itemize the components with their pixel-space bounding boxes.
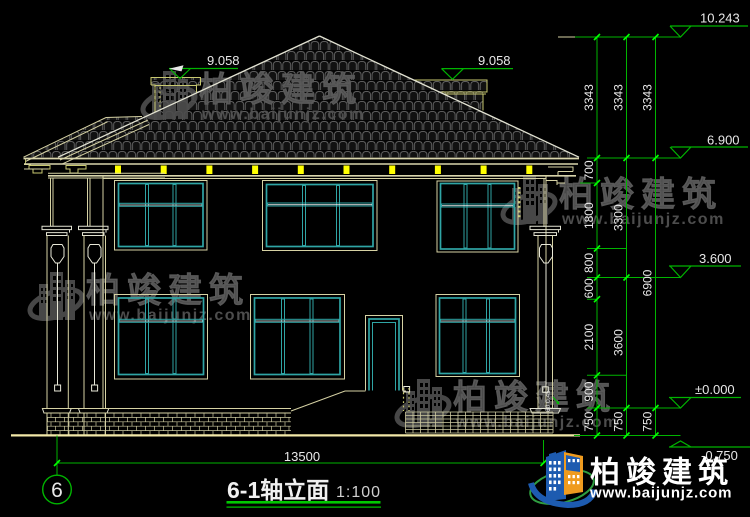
svg-text:750: 750 <box>582 411 596 431</box>
svg-text:3343: 3343 <box>612 84 626 111</box>
svg-text:6900: 6900 <box>641 269 655 296</box>
svg-text:3343: 3343 <box>641 84 655 111</box>
svg-text:3.600: 3.600 <box>699 251 732 266</box>
svg-text:700: 700 <box>582 160 596 180</box>
svg-text:9.058: 9.058 <box>207 53 240 68</box>
svg-text:750: 750 <box>641 411 655 431</box>
svg-text:6-1轴立面: 6-1轴立面 <box>227 477 329 503</box>
svg-text:1800: 1800 <box>582 202 596 229</box>
svg-text:3300: 3300 <box>612 204 626 231</box>
svg-text:±0.000: ±0.000 <box>695 382 735 397</box>
svg-text:10.243: 10.243 <box>700 11 740 26</box>
svg-text:800: 800 <box>582 253 596 273</box>
svg-text:3600: 3600 <box>612 329 626 356</box>
svg-text:1:100: 1:100 <box>336 484 381 501</box>
svg-text:www.baijunjz.com: www.baijunjz.com <box>589 485 732 502</box>
svg-text:60 0.45: 60 0.45 <box>545 390 552 412</box>
svg-text:750: 750 <box>612 411 626 431</box>
svg-text:6: 6 <box>51 479 63 502</box>
svg-text:9.058: 9.058 <box>478 53 511 68</box>
svg-text:3343: 3343 <box>582 84 596 111</box>
svg-text:13500: 13500 <box>284 449 320 464</box>
svg-text:6.900: 6.900 <box>707 133 740 148</box>
svg-text:900: 900 <box>582 381 596 401</box>
svg-text:2100: 2100 <box>582 324 596 351</box>
svg-text:600: 600 <box>582 278 596 298</box>
